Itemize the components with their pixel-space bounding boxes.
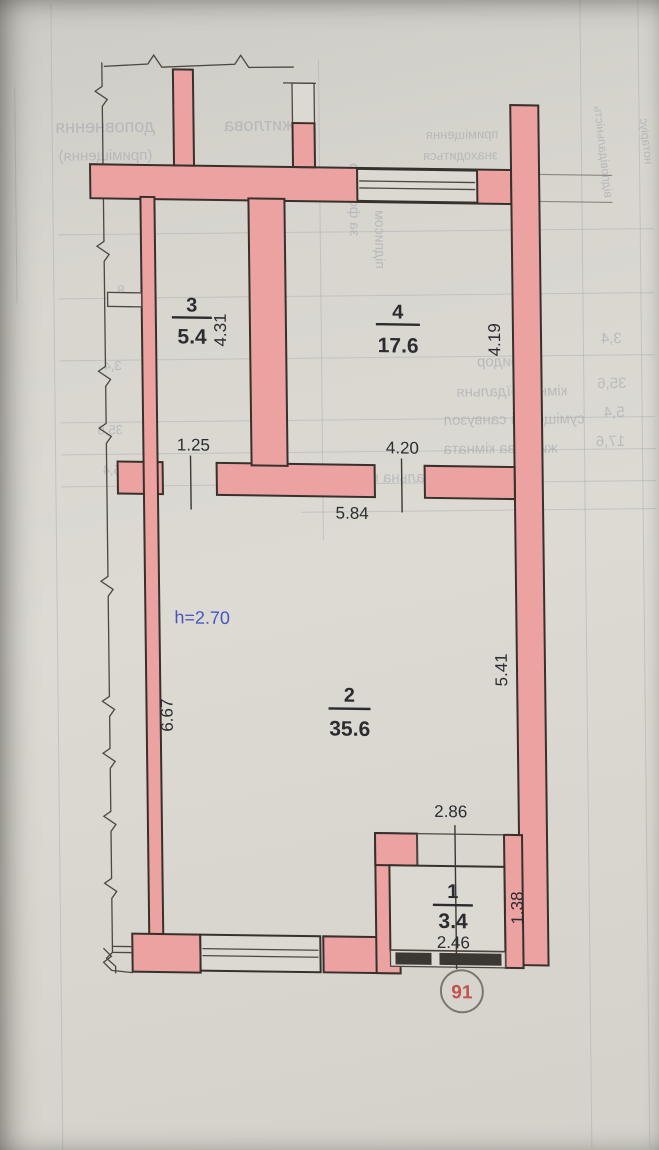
dim-room-1-bottom: 2.46 [437, 933, 470, 952]
room-4-underline [376, 324, 420, 325]
bleed-text: 3,4 [104, 358, 122, 373]
room-1-area: 3.4 [438, 910, 468, 933]
bleed-text: кімната-їдальня [456, 383, 567, 401]
dim-room-1-top: 2.86 [434, 802, 467, 821]
dim-line-1-25 [190, 456, 191, 510]
room-3-underline [172, 317, 212, 318]
bleed-text: 5,4 [604, 404, 625, 421]
top-break-line [104, 53, 294, 69]
dim-line-4-20 [401, 458, 402, 512]
room-3-number: 3 [186, 294, 197, 316]
ceiling-height-note: h=2.70 [174, 607, 230, 628]
room-2-number: 2 [344, 685, 355, 707]
room-1-number: 1 [447, 881, 458, 903]
balcony-railing-segment [395, 952, 431, 965]
bleed-text: 17,6 [596, 433, 625, 450]
room-1-underline [433, 905, 473, 906]
wall-stub-upper-left [173, 69, 194, 165]
dim-room-1-right: 1.38 [508, 891, 527, 924]
window-top [357, 169, 477, 203]
bleed-text: (приміщення) [58, 147, 152, 165]
room-4-area: 17.6 [378, 334, 419, 358]
bleed-text: доповнення [55, 116, 155, 137]
unit-number: 91 [451, 982, 473, 1003]
bleed-rule-line [638, 0, 650, 1147]
floorplan-canvas: житлова доповнення (приміщення) приміщен… [0, 0, 659, 1150]
bleed-text: житлова [223, 114, 294, 135]
neighbor-wall-line [539, 201, 612, 202]
bleed-text: підписом [372, 210, 389, 269]
dim-room-2-right: 5.41 [492, 653, 511, 686]
scanned-floorplan-page: житлова доповнення (приміщення) приміщен… [0, 0, 659, 1150]
wall-left-thin [140, 197, 163, 934]
wall-bottom-pier-left [132, 934, 200, 973]
wall-balcony-top [375, 833, 417, 866]
bleed-rule-line [580, 0, 592, 1147]
dim-room-2-top: 5.84 [336, 504, 369, 523]
room-2-area: 35.6 [329, 717, 370, 741]
room-4-number: 4 [392, 301, 404, 323]
balcony-railing-segment [439, 953, 501, 966]
room-3-area: 5.4 [177, 325, 207, 348]
window-bottom [200, 935, 320, 973]
wall-stub-upper-right [292, 123, 315, 167]
wall-stub-upper-right-open [292, 83, 314, 123]
bleed-text: відповідальність [591, 105, 616, 198]
wall-partition-rooms-3-4 [248, 198, 287, 466]
bleed-rule-line [15, 88, 17, 303]
wall-middle-right [425, 466, 515, 499]
bleed-text: приміщення [426, 126, 499, 142]
floor-plan: 3 5.4 4.31 1.25 4 17.6 4.19 4.20 5.84 h=… [89, 53, 622, 1014]
balcony-opening-line [417, 834, 504, 835]
bleed-rule-line [51, 3, 63, 1150]
room-2-underline [329, 708, 371, 709]
dim-room-3-right: 4.31 [211, 313, 230, 346]
bleed-text: 3,4 [601, 330, 622, 347]
wall-middle-center [217, 463, 375, 497]
dim-room-3-bottom: 1.25 [177, 435, 210, 454]
dim-room-4-bottom: 4.20 [386, 438, 419, 457]
left-wall-niche [108, 292, 142, 306]
bleed-text: 35,6 [597, 375, 626, 392]
dim-room-4-right: 4.19 [485, 323, 504, 356]
bleed-text: знаходиться [423, 147, 498, 163]
dim-room-2-left: 6.67 [157, 698, 176, 731]
